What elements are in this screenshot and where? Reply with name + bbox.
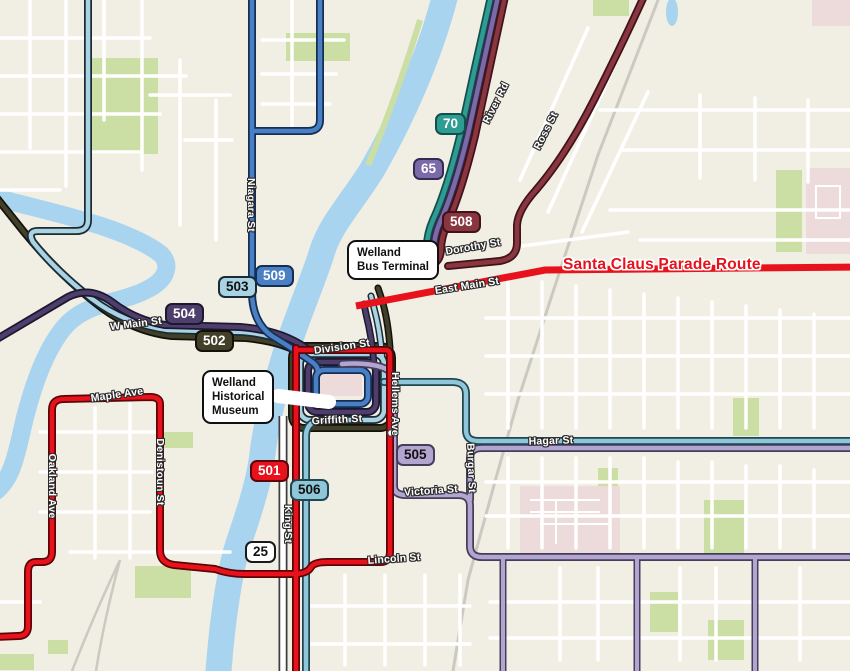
museum-callout-line3: Museum bbox=[212, 404, 264, 418]
street-label-hellems-ave: Hellems Ave bbox=[389, 372, 401, 436]
street-label-niagara-st: Niagara St bbox=[245, 178, 257, 232]
museum-callout-line1: Welland bbox=[212, 376, 264, 390]
transit-map-canvas[interactable]: Niagara St River Rd Ross St Dorothy St E… bbox=[0, 0, 850, 671]
welland-historical-museum-callout: Welland Historical Museum bbox=[202, 370, 274, 424]
route-badge-506: 506 bbox=[290, 479, 329, 501]
route-badge-501: 501 bbox=[250, 460, 289, 482]
route-badge-65: 65 bbox=[413, 158, 444, 180]
highway-badge-25: 25 bbox=[245, 541, 276, 563]
street-label-burgar-st: Burgar St bbox=[464, 443, 478, 493]
route-badge-504: 504 bbox=[165, 303, 204, 325]
street-label-denistoun-st: Denistoun St bbox=[154, 438, 166, 505]
street-label-oakland-ave: Oakland Ave bbox=[46, 453, 58, 518]
welland-bus-terminal-callout: Welland Bus Terminal bbox=[347, 240, 439, 280]
parade-route-label: Santa Claus Parade Route bbox=[563, 256, 761, 274]
route-badge-502: 502 bbox=[195, 330, 234, 352]
route-badge-503: 503 bbox=[218, 276, 257, 298]
map-graphics bbox=[0, 0, 850, 671]
museum-callout-pointer bbox=[278, 396, 329, 402]
terminal-callout-line2: Bus Terminal bbox=[357, 260, 429, 274]
terminal-callout-line1: Welland bbox=[357, 246, 429, 260]
museum-callout-line2: Historical bbox=[212, 390, 264, 404]
route-badge-508: 508 bbox=[442, 211, 481, 233]
route-badge-509: 509 bbox=[255, 265, 294, 287]
street-label-hagar-st: Hagar St bbox=[528, 434, 573, 448]
street-label-king-st: King St bbox=[282, 505, 294, 543]
route-badge-505: 505 bbox=[396, 444, 435, 466]
route-badge-70: 70 bbox=[435, 113, 466, 135]
